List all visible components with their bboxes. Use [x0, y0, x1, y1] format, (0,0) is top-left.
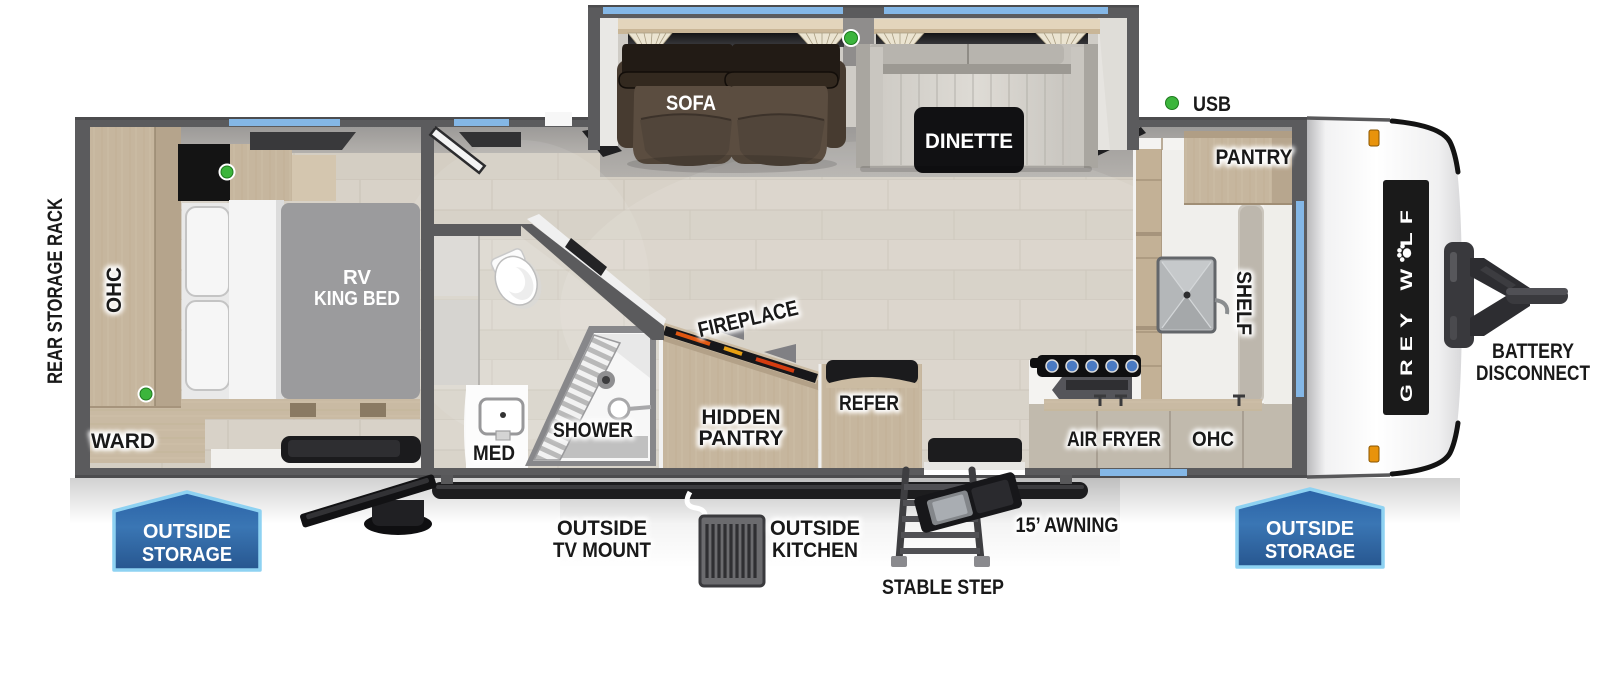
- svg-text:REAR STORAGE RACK: REAR STORAGE RACK: [43, 198, 67, 384]
- svg-text:RV: RV: [343, 267, 372, 289]
- svg-text:OHC: OHC: [102, 267, 126, 313]
- svg-text:STABLE STEP: STABLE STEP: [882, 575, 1004, 599]
- svg-text:PANTRY: PANTRY: [699, 426, 784, 450]
- svg-text:KING BED: KING BED: [314, 288, 400, 310]
- svg-text:STORAGE: STORAGE: [1265, 540, 1355, 563]
- svg-text:OUTSIDE: OUTSIDE: [143, 520, 231, 543]
- svg-text:OUTSIDE: OUTSIDE: [1266, 517, 1354, 540]
- svg-text:PANTRY: PANTRY: [1216, 145, 1293, 169]
- svg-text:SHELF: SHELF: [1232, 271, 1256, 335]
- svg-text:GREY W LF: GREY W LF: [1397, 202, 1416, 402]
- svg-text:WARD: WARD: [91, 429, 155, 453]
- svg-text:AIR FRYER: AIR FRYER: [1067, 427, 1161, 451]
- svg-text:BATTERY: BATTERY: [1492, 339, 1574, 363]
- svg-text:MED: MED: [473, 441, 515, 465]
- svg-text:TV MOUNT: TV MOUNT: [553, 538, 651, 562]
- svg-text:OHC: OHC: [1192, 427, 1234, 451]
- svg-text:REFER: REFER: [839, 391, 899, 415]
- svg-text:STORAGE: STORAGE: [142, 543, 232, 566]
- svg-text:SHOWER: SHOWER: [553, 418, 633, 442]
- svg-text:15’ AWNING: 15’ AWNING: [1016, 513, 1119, 537]
- svg-text:KITCHEN: KITCHEN: [772, 538, 858, 562]
- svg-text:OUTSIDE: OUTSIDE: [770, 516, 860, 540]
- svg-text:DISCONNECT: DISCONNECT: [1476, 361, 1590, 385]
- svg-text:DINETTE: DINETTE: [925, 129, 1013, 153]
- svg-text:OUTSIDE: OUTSIDE: [557, 516, 647, 540]
- svg-text:USB: USB: [1193, 92, 1231, 116]
- svg-text:SOFA: SOFA: [666, 91, 716, 115]
